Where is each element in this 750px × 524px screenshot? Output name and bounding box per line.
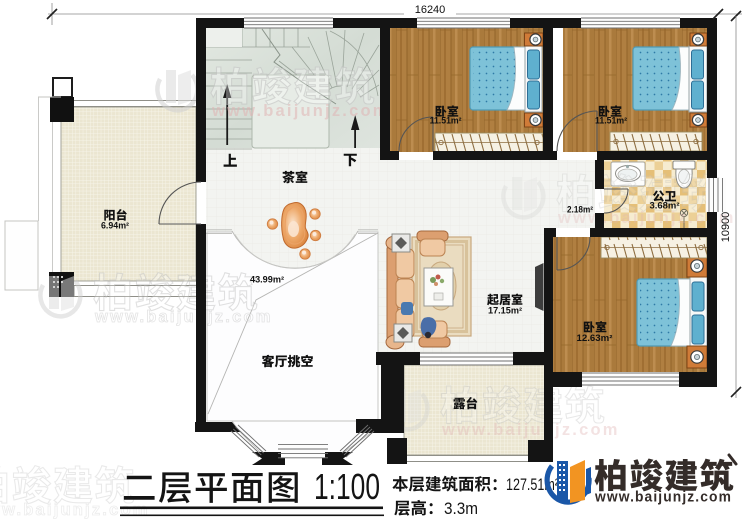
svg-text:www.baijunjz.com: www.baijunjz.com (211, 102, 390, 120)
svg-text:3.68m²: 3.68m² (650, 201, 680, 211)
svg-text:www.baijunjz.com: www.baijunjz.com (441, 421, 620, 439)
svg-text:6.94m²: 6.94m² (101, 221, 129, 231)
svg-text:11.51m²: 11.51m² (430, 115, 462, 125)
svg-text:3.3m: 3.3m (444, 499, 478, 518)
svg-text:11.51m²: 11.51m² (595, 115, 627, 125)
svg-text:12.63m²: 12.63m² (577, 333, 613, 343)
svg-text:17.15m²: 17.15m² (488, 306, 522, 316)
svg-text:www.baijunjz.com: www.baijunjz.com (0, 501, 150, 519)
svg-text:43.99m²: 43.99m² (250, 275, 284, 285)
svg-text:16240: 16240 (415, 4, 446, 16)
svg-text:www.baijunjz.com: www.baijunjz.com (94, 308, 273, 326)
svg-text:10900: 10900 (720, 212, 732, 243)
svg-text:www.baijunjz.com: www.baijunjz.com (594, 489, 732, 506)
svg-text:2.18m²: 2.18m² (567, 205, 593, 215)
svg-text:1:100: 1:100 (314, 466, 380, 507)
